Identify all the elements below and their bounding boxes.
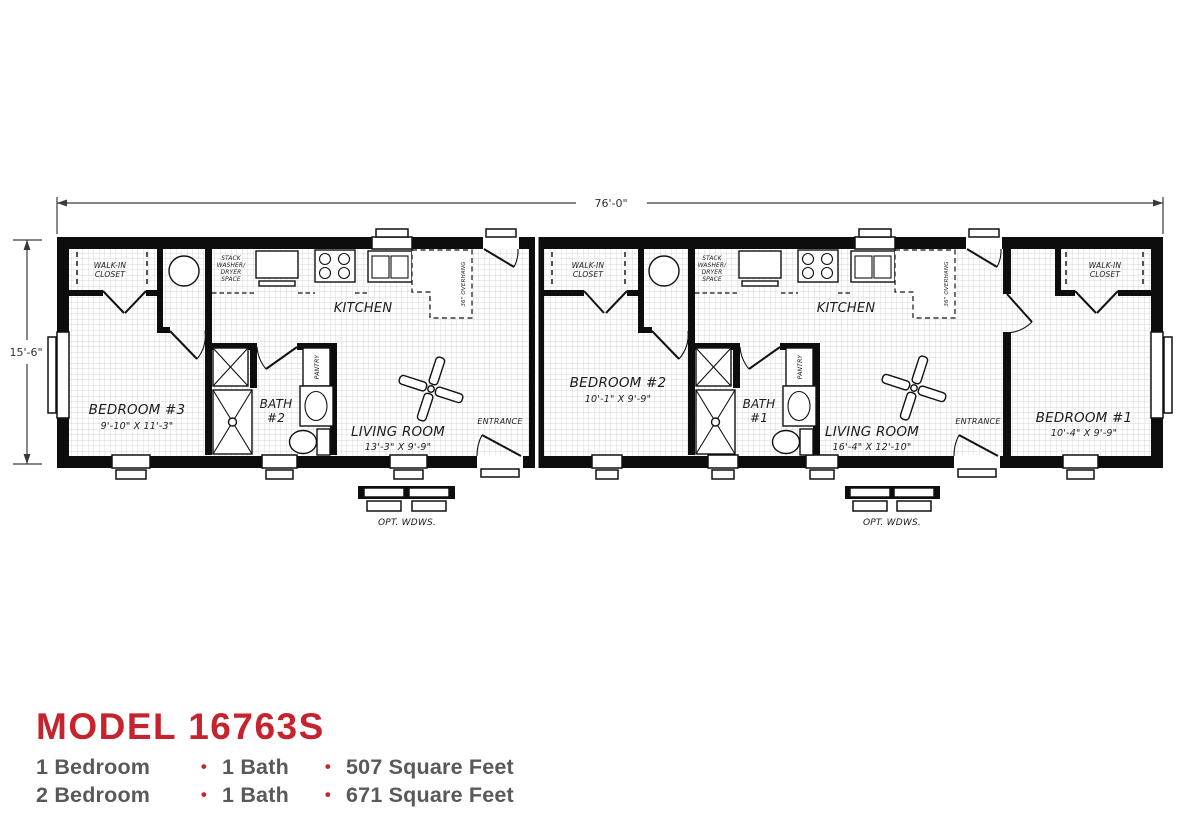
living-room-left-label: LIVING ROOM (351, 424, 445, 440)
shower-icon (696, 390, 735, 454)
spec1-sqft: 507 Square Feet (346, 755, 514, 779)
bedroom1-dims: 10'-4" X 9'-9" (1051, 428, 1117, 439)
stack-washer-label: SPACE (221, 277, 241, 283)
living-room-right-dims: 16'-4" X 12'-10" (833, 442, 912, 453)
linen-cabinet-icon (696, 348, 731, 386)
stack-washer-label: SPACE (702, 277, 722, 283)
bath2-number: #2 (267, 411, 285, 425)
stack-washer-label: DRYER (702, 270, 723, 276)
pantry-label: PANTRY (797, 354, 804, 380)
stack-washer-label: STACK (702, 256, 723, 262)
unit-divider-wall (529, 237, 544, 468)
toilet-icon (773, 429, 814, 455)
spec1-bedrooms: 1 Bedroom (36, 754, 186, 782)
kitchen-label: KITCHEN (334, 301, 393, 316)
window (592, 455, 622, 479)
living-room-left-dims: 13'-3" X 9'-9" (365, 442, 431, 453)
overhang-label: 36" OVERHANG (944, 261, 950, 306)
opt-windows-label: OPT. WDWS. (863, 518, 921, 528)
pantry-cabinet: PANTRY (786, 348, 813, 386)
range-icon (798, 250, 838, 282)
bedroom3-dims: 9'-10" X 11'-3" (101, 421, 174, 432)
optional-windows-right: OPT. WDWS. (845, 486, 940, 528)
window (1063, 455, 1098, 479)
bath1-label: BATH (743, 397, 776, 411)
kitchen-sink-icon (851, 251, 895, 282)
washer-icon (169, 256, 199, 286)
stack-washer-label: WASHER/ (698, 263, 727, 269)
spec-line-2: 2 Bedroom•1 Bath•671 Square Feet (36, 781, 514, 810)
pantry-label: PANTRY (314, 354, 321, 380)
stack-washer-label: STACK (221, 256, 242, 262)
bedroom2-label: BEDROOM #2 (570, 375, 667, 391)
title-block: MODEL 16763S 1 Bedroom•1 Bath•507 Square… (36, 708, 514, 810)
optional-windows-left: OPT. WDWS. (358, 486, 455, 528)
washer-icon (649, 256, 679, 286)
page: 76'-0" 15'-6" (0, 0, 1200, 818)
refrigerator-icon (256, 251, 298, 286)
stack-washer-label: DRYER (221, 270, 242, 276)
bath1-number: #1 (750, 411, 768, 425)
bedroom1-label: BEDROOM #1 (1036, 410, 1133, 426)
entrance-label: ENTRANCE (477, 417, 523, 426)
bath-vanity-icon (783, 386, 816, 426)
spec-line-1: 1 Bedroom•1 Bath•507 Square Feet (36, 753, 514, 782)
toilet-icon (290, 429, 331, 455)
refrigerator-icon (739, 251, 781, 286)
spec2-bedrooms: 2 Bedroom (36, 782, 186, 810)
walkin-closet-label: CLOSET (1090, 270, 1122, 279)
height-dimension: 15'-6" (9, 240, 42, 464)
window (112, 455, 150, 479)
bath-vanity-icon (300, 386, 333, 426)
window (48, 332, 69, 418)
walkin-closet-label: WALK-IN (1089, 261, 1122, 270)
height-dimension-label: 15'-6" (9, 346, 42, 359)
overhang-label: 36" OVERHANG (461, 261, 467, 306)
pantry-cabinet: PANTRY (303, 348, 330, 386)
opt-windows-label: OPT. WDWS. (378, 518, 436, 528)
walkin-closet-label: WALK-IN (94, 261, 127, 270)
walkin-closet-label: WALK-IN (572, 261, 605, 270)
bullet-icon: • (186, 753, 222, 781)
walkin-closet-label: CLOSET (95, 270, 127, 279)
linen-cabinet-icon (213, 348, 248, 386)
shower-icon (213, 390, 252, 454)
window (262, 455, 297, 479)
kitchen-sink-icon (368, 251, 412, 282)
bath2-label: BATH (260, 397, 293, 411)
bullet-icon: • (310, 781, 346, 809)
kitchen-label: KITCHEN (817, 301, 876, 316)
window (390, 455, 427, 479)
floor-plan-drawing: 76'-0" 15'-6" (0, 0, 1200, 690)
window (372, 229, 412, 249)
entrance-label: ENTRANCE (955, 417, 1001, 426)
spec2-sqft: 671 Square Feet (346, 783, 514, 807)
bullet-icon: • (186, 781, 222, 809)
model-title: MODEL 16763S (36, 708, 514, 747)
stack-washer-label: WASHER/ (217, 263, 246, 269)
window (806, 455, 838, 479)
bullet-icon: • (310, 753, 346, 781)
range-icon (315, 250, 355, 282)
bedroom2-dims: 10'-1" X 9'-9" (585, 394, 651, 405)
window (1151, 332, 1172, 418)
spec2-baths: 1 Bath (222, 782, 310, 810)
living-room-right-label: LIVING ROOM (825, 424, 919, 440)
width-dimension-label: 76'-0" (594, 197, 627, 210)
window (708, 455, 738, 479)
walkin-closet-label: CLOSET (573, 270, 605, 279)
spec1-baths: 1 Bath (222, 754, 310, 782)
bedroom3-label: BEDROOM #3 (89, 402, 186, 418)
window (855, 229, 895, 249)
